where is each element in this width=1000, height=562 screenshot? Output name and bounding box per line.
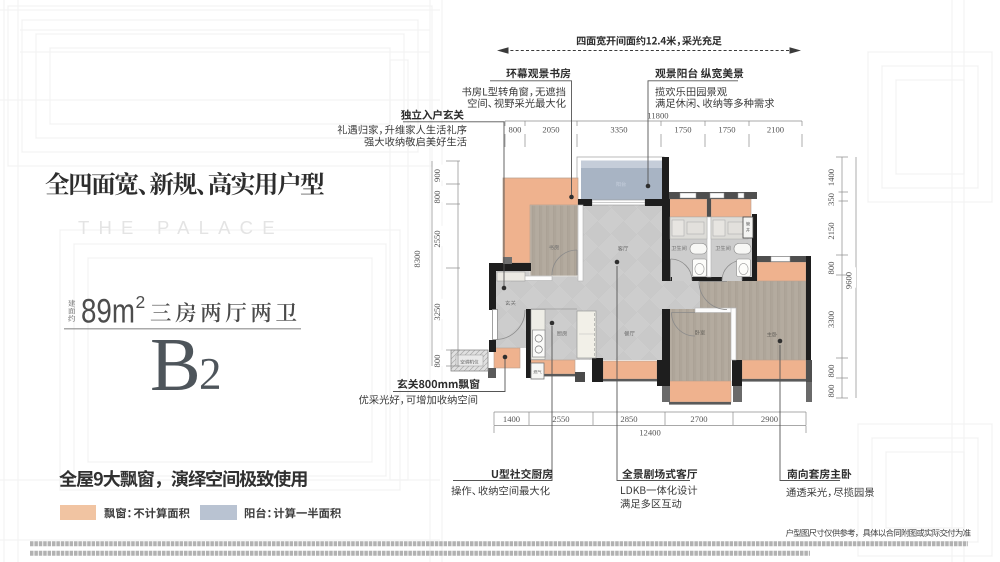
svg-text:9600: 9600 (844, 272, 854, 289)
svg-text:89m: 89m (81, 293, 135, 331)
svg-text:2: 2 (136, 292, 146, 312)
svg-text:2900: 2900 (761, 414, 778, 424)
svg-text:3300: 3300 (826, 311, 836, 328)
svg-text:11800: 11800 (647, 111, 668, 121)
svg-text:3250: 3250 (432, 303, 442, 320)
svg-text:2: 2 (199, 349, 222, 399)
svg-text:12400: 12400 (639, 428, 660, 438)
svg-text:2550: 2550 (552, 414, 569, 424)
svg-text:THE PALACE: THE PALACE (78, 217, 284, 238)
svg-text:B: B (150, 323, 201, 407)
svg-text:2550: 2550 (432, 230, 442, 247)
svg-text:800: 800 (432, 355, 442, 368)
svg-text:800: 800 (432, 191, 442, 204)
svg-text:1750: 1750 (674, 125, 691, 135)
svg-text:2850: 2850 (620, 414, 637, 424)
svg-text:350: 350 (826, 193, 836, 206)
svg-text:2700: 2700 (690, 414, 707, 424)
svg-text:1400: 1400 (503, 414, 520, 424)
svg-text:8300: 8300 (412, 250, 422, 267)
svg-text:2150: 2150 (826, 222, 836, 239)
svg-text:800: 800 (509, 125, 522, 135)
svg-text:800: 800 (826, 385, 836, 398)
svg-text:1750: 1750 (718, 125, 735, 135)
svg-text:3350: 3350 (610, 125, 627, 135)
svg-text:800: 800 (826, 365, 836, 378)
svg-text:2050: 2050 (542, 125, 559, 135)
svg-text:2100: 2100 (767, 125, 784, 135)
svg-text:800: 800 (826, 262, 836, 275)
svg-text:1400: 1400 (826, 169, 836, 186)
svg-text:900: 900 (432, 169, 442, 182)
